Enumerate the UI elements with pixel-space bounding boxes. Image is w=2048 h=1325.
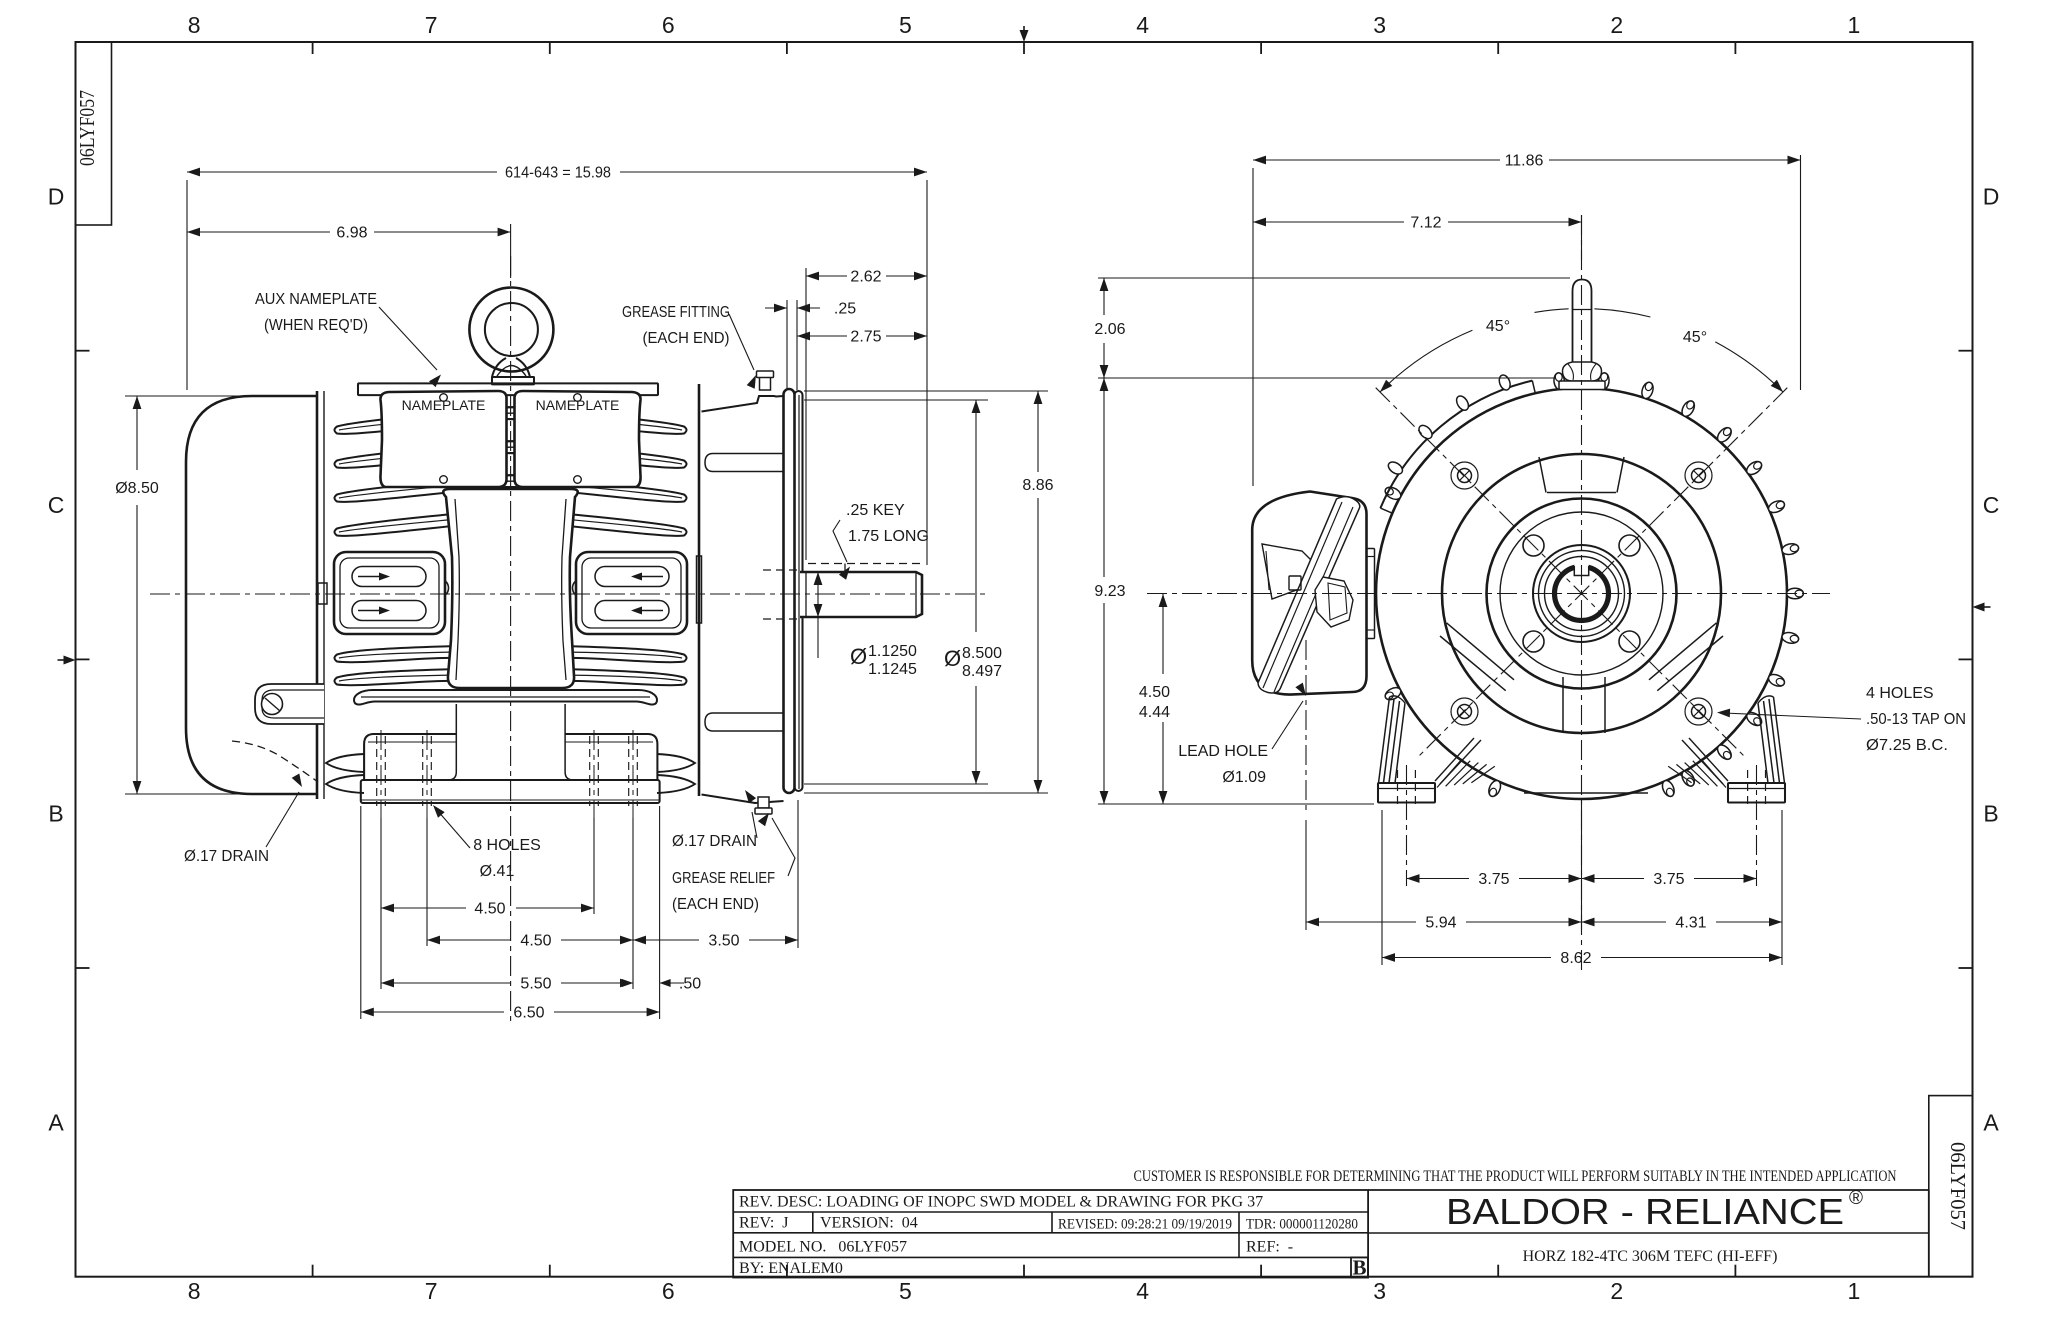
svg-text:2.06: 2.06	[1094, 321, 1125, 338]
svg-text:B: B	[1352, 1256, 1366, 1280]
svg-text:45°: 45°	[1683, 329, 1707, 346]
svg-text:6: 6	[662, 1278, 675, 1304]
svg-text:8 HOLES: 8 HOLES	[473, 837, 541, 854]
svg-text:2: 2	[1610, 1278, 1623, 1304]
svg-text:4.31: 4.31	[1675, 915, 1706, 932]
svg-text:VERSION: 04: VERSION: 04	[820, 1215, 918, 1232]
svg-text:.50-13 TAP ON: .50-13 TAP ON	[1866, 711, 1966, 728]
svg-text:REF: -: REF: -	[1246, 1239, 1293, 1256]
svg-text:8.497: 8.497	[962, 663, 1002, 680]
svg-text:Ø.41: Ø.41	[480, 863, 515, 880]
svg-text:C: C	[1983, 492, 2000, 518]
svg-text:5: 5	[899, 12, 912, 38]
svg-text:A: A	[1983, 1109, 1999, 1135]
svg-text:REV. DESC: LOADING OF INOPC SW: REV. DESC: LOADING OF INOPC SWD MODEL & …	[739, 1194, 1263, 1211]
svg-text:B: B	[1983, 801, 1998, 827]
svg-text:7: 7	[425, 12, 438, 38]
svg-text:D: D	[1983, 183, 2000, 209]
svg-text:B: B	[48, 801, 63, 827]
svg-text:11.86: 11.86	[1505, 153, 1544, 170]
svg-text:TDR: 000001120280: TDR: 000001120280	[1246, 1217, 1358, 1233]
svg-text:4 HOLES: 4 HOLES	[1866, 685, 1934, 702]
svg-text:1: 1	[1848, 1278, 1861, 1304]
svg-text:8.62: 8.62	[1560, 950, 1591, 967]
svg-text:2: 2	[1610, 12, 1623, 38]
svg-text:(EACH END): (EACH END)	[643, 330, 730, 347]
svg-text:.25 KEY: .25 KEY	[846, 502, 905, 519]
svg-text:45°: 45°	[1486, 318, 1510, 335]
svg-text:4.50: 4.50	[520, 933, 551, 950]
svg-text:06LYF057: 06LYF057	[1946, 1142, 1970, 1230]
svg-text:8.86: 8.86	[1022, 477, 1053, 494]
svg-text:HORZ 182-4TC 306M TEFC (HI-EFF: HORZ 182-4TC 306M TEFC (HI-EFF)	[1523, 1248, 1778, 1265]
svg-text:Ø.17 DRAIN: Ø.17 DRAIN	[672, 833, 757, 850]
svg-text:5: 5	[899, 1278, 912, 1304]
svg-text:6.98: 6.98	[336, 225, 367, 242]
svg-text:D: D	[48, 183, 65, 209]
svg-text:BALDOR - RELIANCE: BALDOR - RELIANCE	[1446, 1191, 1844, 1232]
svg-text:.25: .25	[834, 301, 856, 318]
svg-text:8.500: 8.500	[962, 645, 1002, 662]
svg-text:1: 1	[1848, 12, 1861, 38]
svg-text:NAMEPLATE: NAMEPLATE	[536, 397, 620, 413]
svg-text:1.75 LONG: 1.75 LONG	[848, 528, 929, 545]
svg-text:2.75: 2.75	[850, 329, 881, 346]
svg-text:Ø.17 DRAIN: Ø.17 DRAIN	[184, 848, 269, 865]
svg-text:6: 6	[662, 12, 675, 38]
svg-text:1.1245: 1.1245	[868, 661, 917, 678]
svg-text:BY: ENALEM0: BY: ENALEM0	[739, 1260, 843, 1277]
svg-text:AUX NAMEPLATE: AUX NAMEPLATE	[255, 291, 377, 308]
svg-text:Ø7.25 B.C.: Ø7.25 B.C.	[1866, 737, 1948, 754]
svg-text:1.1250: 1.1250	[868, 643, 917, 660]
svg-text:GREASE RELIEF: GREASE RELIEF	[672, 870, 775, 887]
svg-text:C: C	[48, 492, 65, 518]
svg-text:MODEL NO. 06LYF057: MODEL NO. 06LYF057	[739, 1239, 907, 1256]
svg-text:NAMEPLATE: NAMEPLATE	[402, 397, 486, 413]
svg-text:A: A	[48, 1109, 64, 1135]
svg-text:4.44: 4.44	[1139, 704, 1170, 721]
svg-text:3: 3	[1373, 12, 1386, 38]
svg-text:4.50: 4.50	[1139, 684, 1170, 701]
svg-text:9.23: 9.23	[1094, 583, 1125, 600]
svg-text:REVISED: 09:28:21 09/19/2019: REVISED: 09:28:21 09/19/2019	[1058, 1217, 1232, 1233]
svg-text:3: 3	[1373, 1278, 1386, 1304]
svg-text:8: 8	[188, 1278, 201, 1304]
svg-text:4.50: 4.50	[474, 901, 505, 918]
svg-text:3.75: 3.75	[1478, 871, 1509, 888]
svg-text:5.50: 5.50	[520, 976, 551, 993]
svg-text:4: 4	[1136, 12, 1149, 38]
svg-text:GREASE FITTING: GREASE FITTING	[622, 304, 730, 321]
svg-text:®: ®	[1849, 1188, 1863, 1209]
svg-text:6.50: 6.50	[513, 1005, 544, 1022]
svg-text:7.12: 7.12	[1410, 215, 1441, 232]
svg-text:Ø: Ø	[850, 644, 867, 669]
svg-text:(WHEN REQ'D): (WHEN REQ'D)	[264, 317, 368, 334]
svg-text:(EACH END): (EACH END)	[672, 896, 759, 913]
svg-text:3.50: 3.50	[708, 933, 739, 950]
svg-text:Ø8.50: Ø8.50	[115, 480, 159, 497]
svg-text:REV: J: REV: J	[739, 1215, 788, 1232]
svg-text:3.75: 3.75	[1653, 871, 1684, 888]
svg-text:5.94: 5.94	[1425, 915, 1456, 932]
svg-text:8: 8	[188, 12, 201, 38]
svg-text:Ø1.09: Ø1.09	[1222, 769, 1266, 786]
svg-text:2.62: 2.62	[850, 269, 881, 286]
svg-text:LEAD HOLE: LEAD HOLE	[1178, 743, 1268, 760]
svg-text:06LYF057: 06LYF057	[75, 90, 99, 166]
svg-text:CUSTOMER IS RESPONSIBLE FOR DE: CUSTOMER IS RESPONSIBLE FOR DETERMINING …	[1134, 1168, 1897, 1185]
svg-text:Ø: Ø	[944, 646, 961, 671]
svg-text:614-643 = 15.98: 614-643 = 15.98	[505, 165, 611, 182]
svg-text:4: 4	[1136, 1278, 1149, 1304]
svg-text:7: 7	[425, 1278, 438, 1304]
svg-text:.50: .50	[679, 976, 701, 993]
